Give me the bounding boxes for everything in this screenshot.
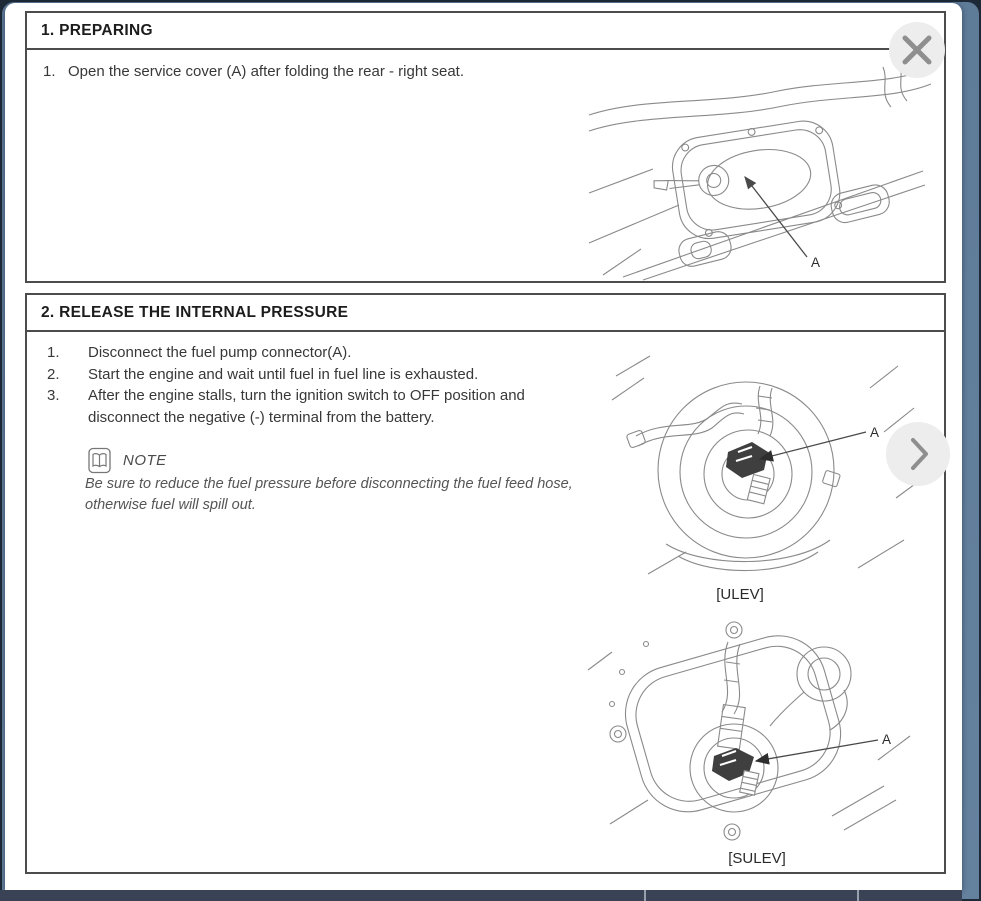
step-number: 2. [47, 364, 88, 386]
figure-caption: [ULEV] [590, 586, 890, 603]
figure-service-cover: A [583, 53, 935, 281]
step-text: Disconnect the fuel pump connector(A). [88, 342, 578, 364]
step-number: 1. [47, 342, 88, 364]
list-item: 3. After the engine stalls, turn the ign… [47, 385, 578, 428]
note-label: NOTE [123, 452, 167, 469]
next-button[interactable] [886, 422, 950, 486]
figure-fuel-pump-sulev: A [582, 610, 912, 850]
release-pressure-steps: 1. Disconnect the fuel pump connector(A)… [47, 342, 578, 428]
section-title: 1. PREPARING [27, 13, 944, 50]
close-button[interactable] [889, 22, 945, 78]
section-title: 2. RELEASE THE INTERNAL PRESSURE [27, 295, 944, 332]
callout-label: A [882, 732, 891, 747]
close-icon [889, 22, 945, 78]
manual-page: 1. PREPARING 1. Open the service cover (… [5, 3, 962, 890]
preparing-steps: 1. Open the service cover (A) after fold… [43, 61, 558, 83]
step-number: 1. [43, 61, 68, 83]
step-text: After the engine stalls, turn the igniti… [88, 385, 578, 428]
panel-divider [644, 890, 646, 901]
figure-caption: [SULEV] [607, 850, 907, 867]
callout-label: A [811, 255, 820, 270]
step-text: Open the service cover (A) after folding… [68, 61, 558, 83]
list-item: 1. Open the service cover (A) after fold… [43, 61, 558, 83]
step-number: 3. [47, 385, 88, 428]
note-header: NOTE [88, 447, 167, 474]
bottom-panel-bar [0, 890, 962, 901]
service-cover-drawing [647, 116, 844, 246]
callout-label: A [870, 425, 879, 440]
note-book-icon [88, 447, 111, 474]
note-text: Be sure to reduce the fuel pressure befo… [85, 474, 593, 516]
step-text: Start the engine and wait until fuel in … [88, 364, 578, 386]
list-item: 2. Start the engine and wait until fuel … [47, 364, 578, 386]
callout-arrow [760, 432, 866, 459]
panel-divider [857, 890, 859, 901]
fuel-pump-connector [726, 442, 768, 478]
figure-fuel-pump-ulev: A [608, 348, 928, 584]
chevron-right-icon [886, 422, 950, 486]
list-item: 1. Disconnect the fuel pump connector(A)… [47, 342, 578, 364]
